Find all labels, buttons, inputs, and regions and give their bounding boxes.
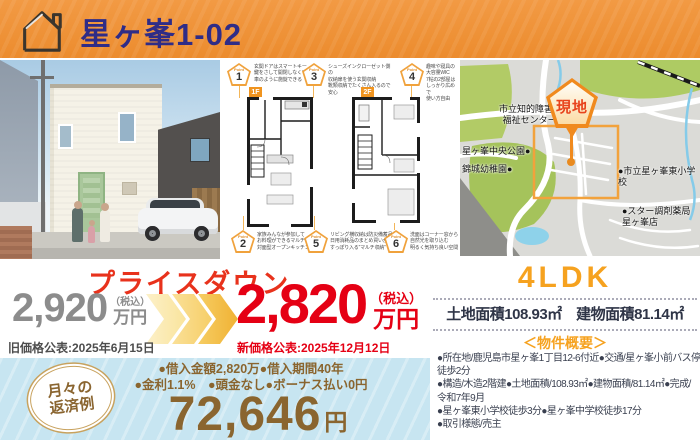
- property-overview: ●所在地/鹿児島市星ヶ峯1丁目12-6付近●交通/星ヶ峯小前バス停 徒歩2分 ●…: [437, 352, 699, 431]
- site-dot: [567, 158, 575, 166]
- callout-line: [243, 216, 244, 230]
- flyer-page: 星ヶ峯1-02 Point 1 玄関ドアは: [0, 0, 700, 440]
- map-label-kindergarten: 錦城幼稚園●: [462, 164, 512, 175]
- house-icon: [16, 5, 66, 55]
- old-price-tax: （税込）: [110, 293, 150, 308]
- map-label-park: 星ヶ峯中央公園●: [462, 146, 530, 157]
- new-price-date: 新価格公表:2025年12月12日: [237, 339, 390, 356]
- point-badge-3: Point 3: [302, 63, 326, 86]
- old-price-unit: 万円: [113, 308, 147, 328]
- neighbor-house-left: [0, 60, 38, 210]
- point-badge-6: Point 6: [384, 230, 408, 253]
- floorplan-panel: Point 1 玄関ドアはスマートキー鍵をさして開閉しなくても車のように施錠でき…: [222, 60, 458, 259]
- point-text-6: 洗面はコーナー窓から自然光を取り込む明るく気持ち良い空間: [410, 232, 458, 251]
- overview-line: ●構造/木造2階建●土地面積/108.93㎡●建物面積/81.14㎡●完成/: [437, 378, 699, 391]
- overview-line: 徒歩2分: [437, 365, 699, 378]
- loan-terms-line1: ●借入金額2,820万●借入期間40年: [108, 362, 394, 378]
- old-price: 2,920 （税込） 万円: [12, 288, 150, 328]
- person-child: [88, 226, 95, 243]
- house-window: [58, 124, 73, 149]
- suv-car: [138, 198, 218, 242]
- point-badge-5: Point 5: [304, 230, 328, 253]
- point-badge-2: Point 2: [231, 230, 255, 253]
- dotted-divider: [433, 329, 697, 331]
- new-price-tax: （税込）: [370, 288, 422, 307]
- map-label-pharmacy: ●スター調剤薬局 星ヶ峯店: [622, 206, 690, 227]
- house-window: [118, 112, 136, 143]
- page-title: 星ヶ峯1-02: [80, 9, 242, 54]
- new-price-value: 2,820: [236, 276, 366, 332]
- road: [0, 248, 220, 259]
- header: 星ヶ峯1-02: [0, 0, 700, 58]
- area-figures: 土地面積108.93㎡ 建物面積81.14㎡: [430, 303, 700, 324]
- neighbor-window: [190, 138, 210, 162]
- person: [100, 210, 110, 242]
- overview-line: ●取引様態/売主: [437, 418, 699, 431]
- site-badge: 現地: [546, 78, 598, 128]
- overview-heading: ＜物件概要＞: [430, 333, 700, 353]
- callout-line: [314, 216, 315, 230]
- overview-line: 令和7年9月: [437, 392, 699, 405]
- point-badge-1: Point 1: [227, 63, 251, 86]
- overview-line: ●所在地/鹿児島市星ヶ峯1丁目12-6付近●交通/星ヶ峯小前バス停: [437, 352, 699, 365]
- utility-pole: [41, 60, 45, 259]
- overview-line: ●星ヶ峯東小学校徒歩3分●星ヶ峯中学校徒歩17分: [437, 405, 699, 418]
- new-price: 2,820 （税込） 万円: [236, 276, 422, 332]
- layout-type: 4LDK: [430, 261, 700, 295]
- dotted-divider: [433, 298, 697, 300]
- map-label-school: ●市立星ヶ峯東小学校: [618, 166, 700, 187]
- floorplan-1f: [247, 97, 313, 227]
- point-text-4: 趣味や寝具の大容量WIC7帖の2部屋はしっかり広めで使い方自由: [426, 64, 458, 102]
- site-pointer-line: [570, 134, 573, 160]
- old-price-value: 2,920: [12, 288, 107, 328]
- house-vent: [122, 182, 137, 195]
- callout-line: [313, 86, 314, 98]
- monthly-amount-value: 72,646: [169, 388, 322, 440]
- point-badge-4: Point 4: [400, 63, 424, 86]
- monthly-amount: 72,646円: [108, 387, 408, 440]
- monthly-amount-unit: 円: [324, 409, 347, 435]
- utility-pole-arm: [30, 76, 54, 79]
- location-map: 市立知的障害者 福祉センター● 星ヶ峯中央公園● 錦城幼稚園● ●市立星ヶ峯東小…: [460, 60, 700, 256]
- person: [72, 208, 83, 242]
- new-price-unit: 万円: [373, 307, 419, 332]
- old-price-date: 旧価格公表:2025年6月15日: [8, 339, 155, 356]
- callout-line: [239, 86, 240, 98]
- brick-corner: [0, 226, 32, 259]
- floorplan-2f: [352, 97, 420, 223]
- exterior-photo: [0, 60, 220, 259]
